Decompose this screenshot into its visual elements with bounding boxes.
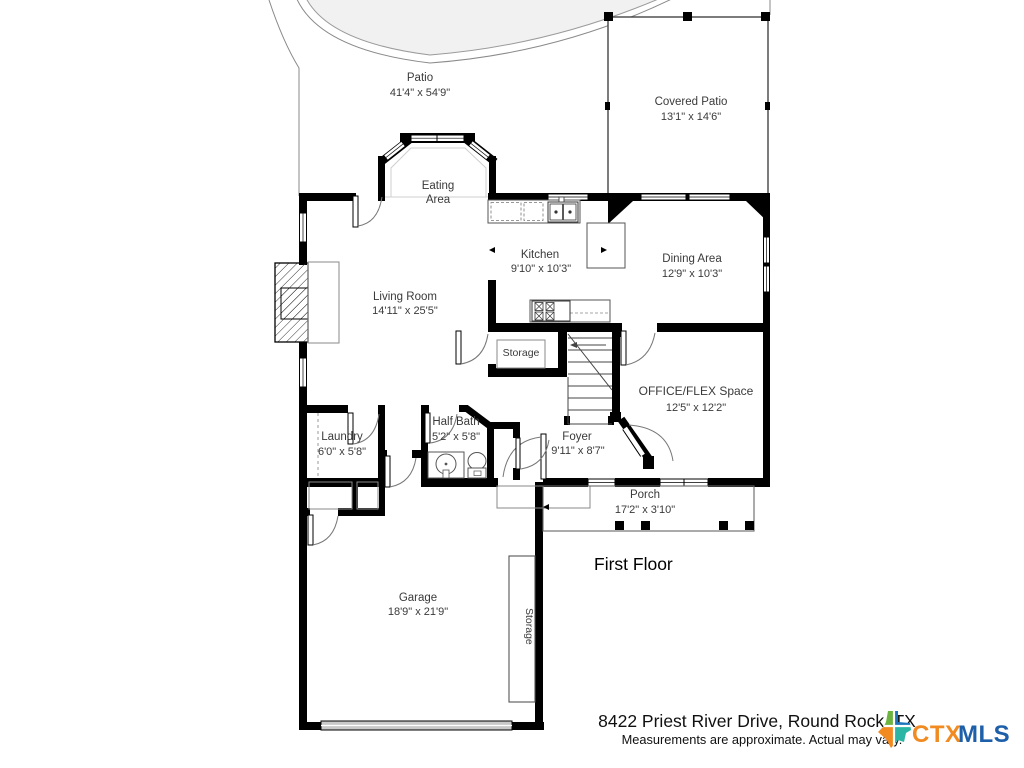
- patio-door: [353, 196, 382, 227]
- stairs: [568, 334, 612, 424]
- bay-window-right: [467, 140, 495, 162]
- svg-text:Laundry: Laundry: [321, 431, 363, 443]
- stairs-direction-arrow: [570, 342, 577, 348]
- office-window-bottom: [660, 479, 708, 486]
- svg-text:17'2" x 3'10": 17'2" x 3'10": [615, 504, 675, 516]
- svg-text:41'4" x 54'9": 41'4" x 54'9": [390, 87, 450, 99]
- svg-text:Patio: Patio: [407, 72, 433, 84]
- room-label-garage: Garage 18'9" x 21'9": [388, 592, 448, 618]
- room-label-half-bath: Half Bath 5'2" x 5'8": [432, 416, 480, 443]
- front-door: [503, 434, 546, 479]
- kitchen-island: [530, 300, 610, 322]
- room-label-living: Living Room 14'11" x 25'5": [372, 291, 438, 317]
- room-label-storage: Storage: [503, 347, 540, 359]
- svg-text:Kitchen: Kitchen: [521, 249, 559, 261]
- svg-text:Living Room: Living Room: [373, 291, 437, 303]
- logo-mls-text: MLS: [958, 721, 1010, 748]
- covered-patio-dims: 13'1" x 14'6": [661, 111, 721, 123]
- svg-text:9'10" x 10'3": 9'10" x 10'3": [511, 263, 571, 275]
- svg-text:9'11" x 8'7": 9'11" x 8'7": [551, 445, 604, 457]
- svg-text:Storage: Storage: [503, 347, 540, 359]
- bay-window-left: [381, 140, 409, 162]
- stove: [532, 301, 570, 321]
- svg-text:Foyer: Foyer: [562, 431, 592, 443]
- covered-patio: Covered Patio 13'1" x 14'6": [604, 12, 770, 195]
- bay-window-top: [411, 135, 464, 142]
- address-text: 8422 Priest River Drive, Round Rock, TX: [598, 711, 916, 731]
- svg-text:14'11" x 25'5": 14'11" x 25'5": [372, 305, 438, 317]
- svg-text:Eating: Eating: [422, 180, 455, 192]
- disclaimer-text: Measurements are approximate. Actual may…: [622, 732, 903, 747]
- room-label-foyer: Foyer 9'11" x 8'7": [551, 431, 604, 457]
- svg-text:Garage: Garage: [399, 592, 437, 604]
- living-window-1: [300, 213, 307, 242]
- svg-text:5'2" x 5'8": 5'2" x 5'8": [432, 431, 480, 443]
- living-window-2: [300, 358, 307, 387]
- room-label-office: OFFICE/FLEX Space 12'5" x 12'2": [639, 384, 754, 414]
- office-door: [621, 331, 655, 365]
- room-label-laundry: Laundry 6'0" x 5'8": [318, 431, 366, 458]
- dining-window-top-2: [689, 194, 730, 200]
- storage-door: [456, 331, 488, 364]
- half-bath-fixtures: [428, 452, 486, 478]
- room-label-dining: Dining Area 12'9" x 10'3": [662, 253, 722, 280]
- svg-text:18'9" x 21'9": 18'9" x 21'9": [388, 606, 448, 618]
- room-label-eating-area: Eating Area: [422, 180, 455, 206]
- dining-window-right-1: [764, 237, 770, 263]
- floor-plan-page: Covered Patio 13'1" x 14'6": [0, 0, 1024, 768]
- foyer-sidelite-window: [588, 479, 615, 486]
- room-label-patio: Patio 41'4" x 54'9": [390, 72, 450, 99]
- garage-entry-door: [308, 515, 338, 545]
- svg-text:Porch: Porch: [630, 489, 660, 501]
- svg-text:Half Bath: Half Bath: [432, 416, 479, 428]
- dining-window-right-2: [764, 266, 770, 292]
- svg-text:Dining Area: Dining Area: [662, 253, 722, 265]
- room-label-kitchen: Kitchen 9'10" x 10'3": [511, 249, 571, 275]
- fireplace: [275, 262, 339, 343]
- svg-text:Storage: Storage: [523, 608, 535, 645]
- dining-window-top-1: [641, 194, 686, 200]
- room-label-porch: Porch 17'2" x 3'10": [615, 489, 675, 516]
- svg-text:12'9" x 10'3": 12'9" x 10'3": [662, 268, 722, 280]
- floor-title: First Floor: [594, 554, 673, 574]
- svg-text:6'0" x 5'8": 6'0" x 5'8": [318, 446, 366, 458]
- logo-ctx-text: CTX: [912, 721, 962, 748]
- room-label-garage-storage: Storage: [523, 608, 535, 645]
- svg-text:12'5" x 12'2": 12'5" x 12'2": [666, 402, 726, 414]
- floor-plan-drawing: Covered Patio 13'1" x 14'6": [0, 0, 1024, 768]
- bathroom-sink: [428, 452, 464, 478]
- hall-door: [385, 456, 416, 487]
- kitchen-window: [548, 194, 588, 200]
- covered-patio-label: Covered Patio: [655, 96, 728, 108]
- svg-text:Area: Area: [426, 194, 451, 206]
- svg-text:OFFICE/FLEX Space: OFFICE/FLEX Space: [639, 384, 754, 398]
- garage-door: [321, 721, 512, 730]
- toilet: [468, 453, 486, 479]
